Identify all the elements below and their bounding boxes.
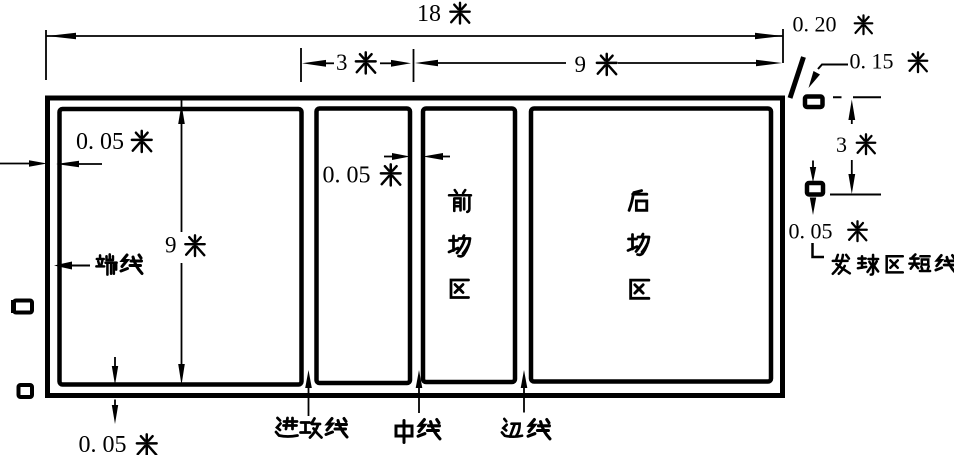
svg-text:9: 9	[165, 233, 177, 258]
svg-text:3: 3	[836, 132, 847, 157]
svg-text:9: 9	[575, 52, 587, 77]
svg-text:3: 3	[336, 50, 348, 75]
svg-text:0. 05: 0. 05	[79, 432, 127, 455]
svg-text:0. 20: 0. 20	[793, 12, 837, 37]
svg-text:0. 05: 0. 05	[323, 163, 371, 189]
svg-text:18: 18	[417, 1, 441, 27]
svg-text:0. 05: 0. 05	[76, 129, 124, 155]
svg-text:0. 15: 0. 15	[850, 49, 894, 74]
svg-text:0. 05: 0. 05	[789, 219, 833, 244]
